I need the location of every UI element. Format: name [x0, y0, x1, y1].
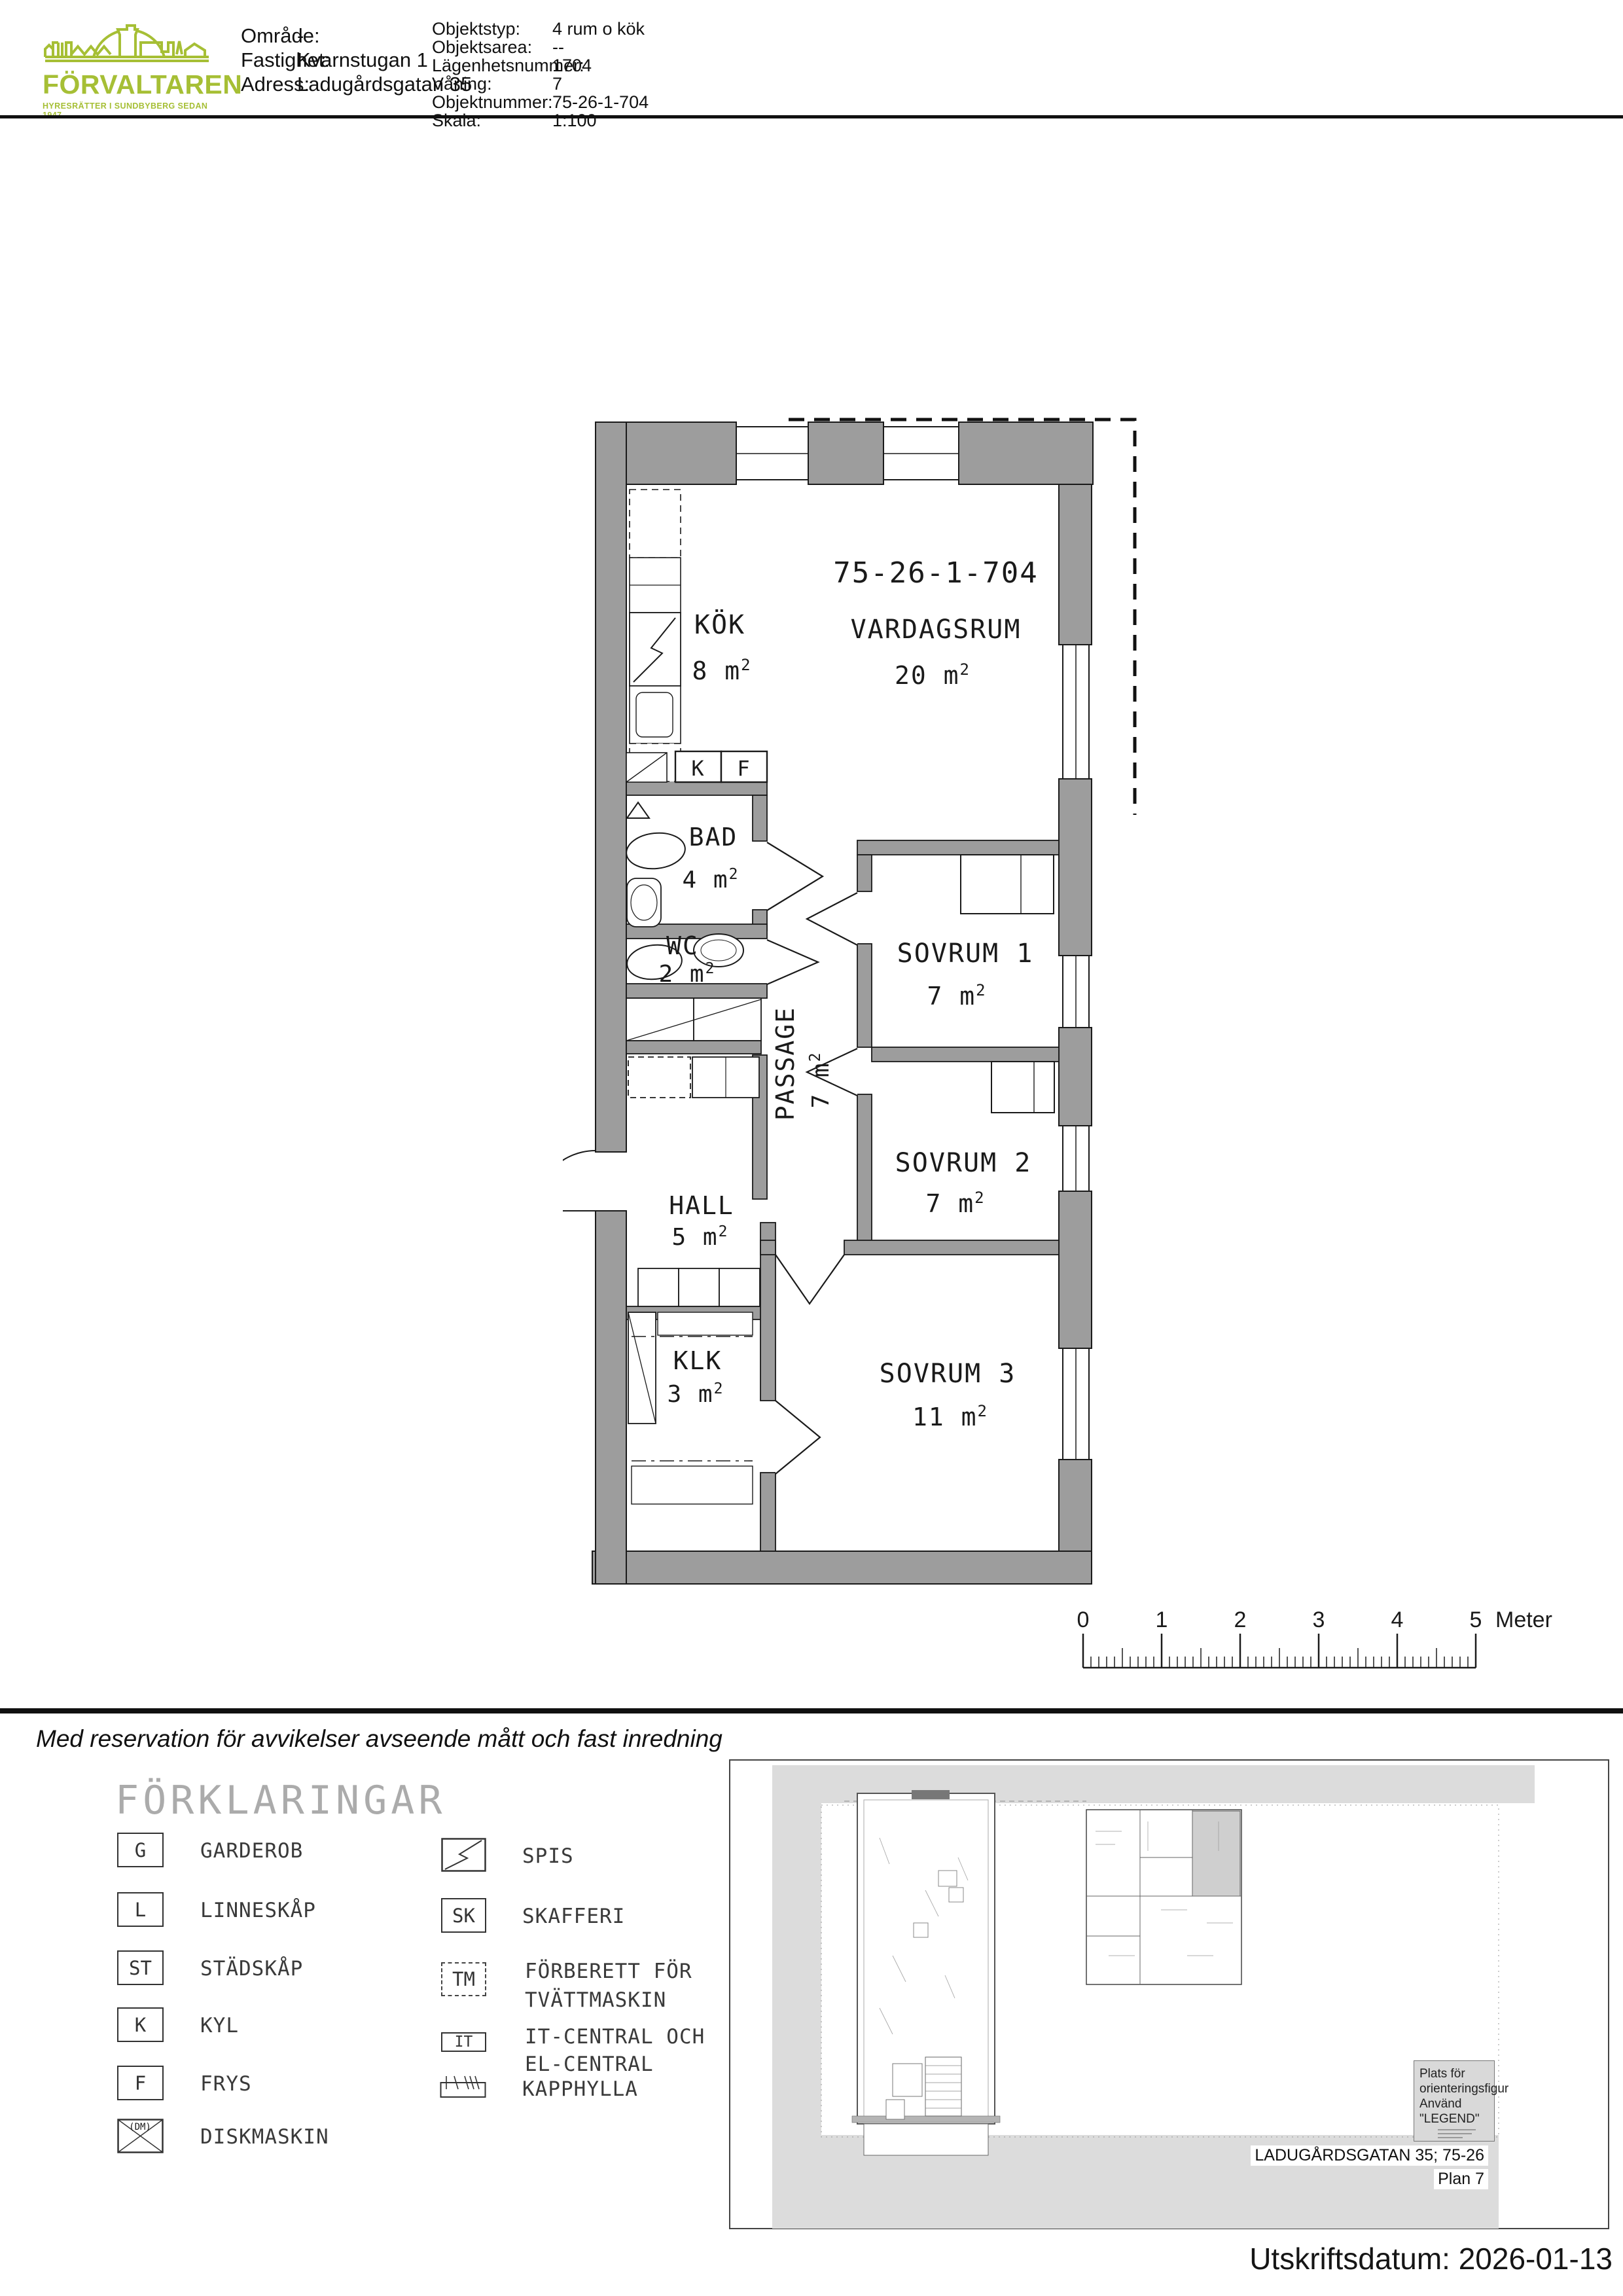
room-label-bad: BAD [689, 823, 738, 852]
svg-text:11 m2: 11 m2 [912, 1402, 988, 1431]
svg-text:7 m2: 7 m2 [925, 1189, 985, 1218]
svg-text:3 m2: 3 m2 [668, 1380, 724, 1408]
legend-symbol-skafferi: SK [441, 1898, 486, 1933]
svg-text:8 m2: 8 m2 [692, 656, 751, 685]
svg-text:3: 3 [1313, 1607, 1325, 1632]
object-label: Objektnummer: [432, 93, 552, 111]
disclaimer-text: Med reservation för avvikelser avseende … [36, 1725, 722, 1753]
property-label: Adress: [241, 72, 297, 96]
overview-building-outline [852, 1790, 1000, 2155]
svg-text:4 m2: 4 m2 [683, 866, 740, 893]
vent-triangle-icon [627, 802, 649, 818]
object-label: Våning: [432, 75, 552, 93]
legend-label-spis: SPIS [522, 1844, 574, 1868]
object-value: 7 [552, 75, 562, 93]
fridge-label: K [691, 756, 705, 781]
legend-label-tvattmaskin-line1: FÖRBERETT FÖR [525, 1960, 692, 1983]
legend-label-garderob: GARDEROB [200, 1839, 303, 1863]
room-label-vardagsrum: VARDAGSRUM [851, 615, 1022, 645]
note-line1: Plats för [1419, 2066, 1490, 2081]
legend-symbol-tvattmaskin: TM [441, 1962, 486, 1996]
overview-plan-label: Plan 7 [1434, 2169, 1488, 2189]
tiny-text-line [1438, 2133, 1472, 2134]
object-value: 1704 [552, 56, 592, 75]
highlighted-apartment-unit [1192, 1811, 1240, 1896]
freezer-label: F [737, 756, 751, 781]
room-label-passage: PASSAGE [771, 1007, 800, 1121]
legend-label-frys: FRYS [200, 2072, 252, 2096]
overview-address-label: LADUGÅRDSGATAN 35; 75-26 [1251, 2145, 1488, 2166]
object-label: Objektsarea: [432, 38, 552, 56]
legend-label-tvattmaskin-line2: TVÄTTMASKIN [525, 1988, 666, 2012]
apartment-number-label: 75-26-1-704 [833, 556, 1038, 590]
object-value: 1:100 [552, 111, 597, 130]
scale-bar-unit: Meter [1495, 1607, 1552, 1632]
legend-symbol-frys: F [117, 2066, 164, 2100]
note-line2: orienteringsfigur [1419, 2081, 1490, 2096]
svg-text:5 m2: 5 m2 [672, 1223, 729, 1251]
plan-footer-divider-line [0, 1708, 1623, 1713]
svg-text:7 m2: 7 m2 [807, 1052, 834, 1109]
legend-symbol-it: IT [441, 2032, 486, 2052]
room-label-klk: KLK [673, 1346, 722, 1375]
legend-label-it-line1: IT-CENTRAL OCH [525, 2025, 705, 2049]
orientation-note-box: Plats för orienteringsfigur Använd "LEGE… [1414, 2060, 1495, 2142]
diskmaskin-icon: (DM) [117, 2119, 164, 2153]
sink-icon [636, 692, 673, 737]
svg-text:1: 1 [1156, 1607, 1168, 1632]
legend-label-kyl: KYL [200, 2014, 239, 2037]
object-label: Lägenhetsnummer: [432, 56, 552, 75]
spis-icon [441, 1838, 486, 1872]
room-label-sovrum3: SOVRUM 3 [880, 1359, 1016, 1389]
svg-text:5: 5 [1470, 1607, 1482, 1632]
entry-door-arc [563, 1151, 596, 1211]
overview-floor-cluster [1086, 1810, 1241, 1984]
room-label-wc: WC [666, 931, 699, 960]
legend-symbol-kyl: K [117, 2007, 164, 2042]
scale-bar: 0 1 2 3 4 5 Meter [1073, 1597, 1571, 1676]
floorplan-document-page: FÖRVALTAREN HYRESRÄTTER I SUNDBYBERG SED… [0, 0, 1623, 2296]
svg-text:(DM): (DM) [129, 2122, 151, 2132]
object-value: 4 rum o kök [552, 20, 645, 38]
legend-title: FÖRKLARINGAR [115, 1778, 446, 1823]
room-label-kok: KÖK [694, 609, 745, 640]
legend-symbol-linneskap: L [117, 1892, 164, 1927]
scale-bar-numbers: 0 1 2 3 4 5 Meter [1077, 1607, 1552, 1632]
svg-text:4: 4 [1391, 1607, 1404, 1632]
tiny-text-line [1438, 2129, 1476, 2130]
header-divider-line [0, 115, 1623, 118]
legend-label-diskmaskin: DISKMASKIN [200, 2125, 329, 2149]
property-value: - [297, 24, 304, 48]
property-value: Kvarnstugan 1 [297, 48, 428, 72]
legend-label-it-line2: EL-CENTRAL [525, 2053, 654, 2076]
legend-symbol-spis [441, 1838, 486, 1875]
room-label-sovrum1: SOVRUM 1 [897, 939, 1034, 969]
svg-text:7 m2: 7 m2 [927, 981, 986, 1011]
legend-symbol-kapphylla [440, 2075, 487, 2102]
legend-label-stadskap: STÄDSKÅP [200, 1957, 303, 1981]
object-value: -- [552, 38, 564, 56]
object-label: Skala: [432, 111, 552, 130]
property-label: Fastighet: [241, 48, 297, 72]
svg-text:0: 0 [1077, 1607, 1090, 1632]
object-value: 75-26-1-704 [552, 93, 649, 111]
logo-skyline-icon [43, 23, 211, 66]
svg-text:2: 2 [1234, 1607, 1247, 1632]
scale-bar-ticks [1083, 1634, 1476, 1668]
door-swings [767, 842, 857, 1474]
print-date: Utskriftsdatum: 2026-01-13 [1249, 2241, 1613, 2276]
legend-symbol-garderob: G [117, 1833, 164, 1867]
svg-text:20 m2: 20 m2 [895, 660, 971, 690]
kapphylla-icon [440, 2075, 487, 2098]
object-info-block: Objektstyp:4 rum o kök Objektsarea:-- Lä… [432, 20, 649, 130]
apartment-floor-plan: 75-26-1-704 KÖK 8 m2 VARDAGSRUM 20 m2 BA… [563, 367, 1165, 1610]
property-label: Område: [241, 24, 297, 48]
note-line3: Använd "LEGEND" [1419, 2096, 1490, 2126]
tiny-text-line [1438, 2137, 1463, 2138]
legend-symbol-diskmaskin: (DM) [117, 2119, 164, 2157]
legend-symbol-stadskap: ST [117, 1950, 164, 1985]
toilet-icon [624, 830, 687, 871]
object-label: Objektstyp: [432, 20, 552, 38]
company-logo: FÖRVALTAREN HYRESRÄTTER I SUNDBYBERG SED… [43, 23, 211, 120]
logo-title: FÖRVALTAREN [43, 69, 211, 100]
legend-label-kapphylla: KAPPHYLLA [522, 2077, 638, 2101]
room-label-sovrum2: SOVRUM 2 [895, 1148, 1032, 1178]
legend-label-linneskap: LINNESKÅP [200, 1899, 316, 1922]
legend-label-skafferi: SKAFFERI [522, 1905, 625, 1928]
room-label-hall: HALL [669, 1191, 734, 1220]
